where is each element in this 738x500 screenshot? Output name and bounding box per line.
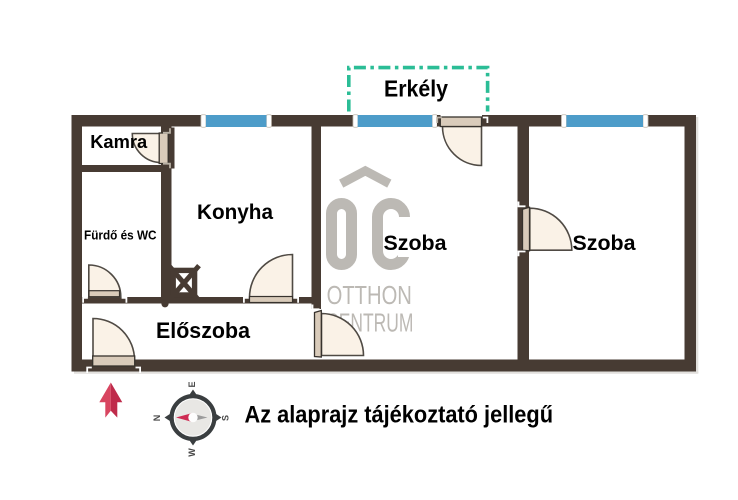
svg-text:OTTHON: OTTHON: [327, 280, 412, 310]
svg-text:Kamra: Kamra: [90, 131, 148, 152]
svg-text:Fürdő és WC: Fürdő és WC: [84, 228, 157, 243]
svg-text:Erkély: Erkély: [384, 76, 448, 102]
svg-text:Konyha: Konyha: [197, 201, 273, 224]
svg-text:Az alaprajz tájékoztató jelleg: Az alaprajz tájékoztató jellegű: [245, 402, 554, 429]
svg-text:W: W: [187, 448, 197, 457]
svg-text:Szoba: Szoba: [384, 232, 447, 255]
svg-text:E: E: [187, 381, 197, 387]
svg-text:N: N: [152, 415, 162, 422]
svg-text:Szoba: Szoba: [573, 232, 636, 255]
svg-text:Előszoba: Előszoba: [156, 318, 251, 343]
svg-text:S: S: [220, 415, 230, 421]
